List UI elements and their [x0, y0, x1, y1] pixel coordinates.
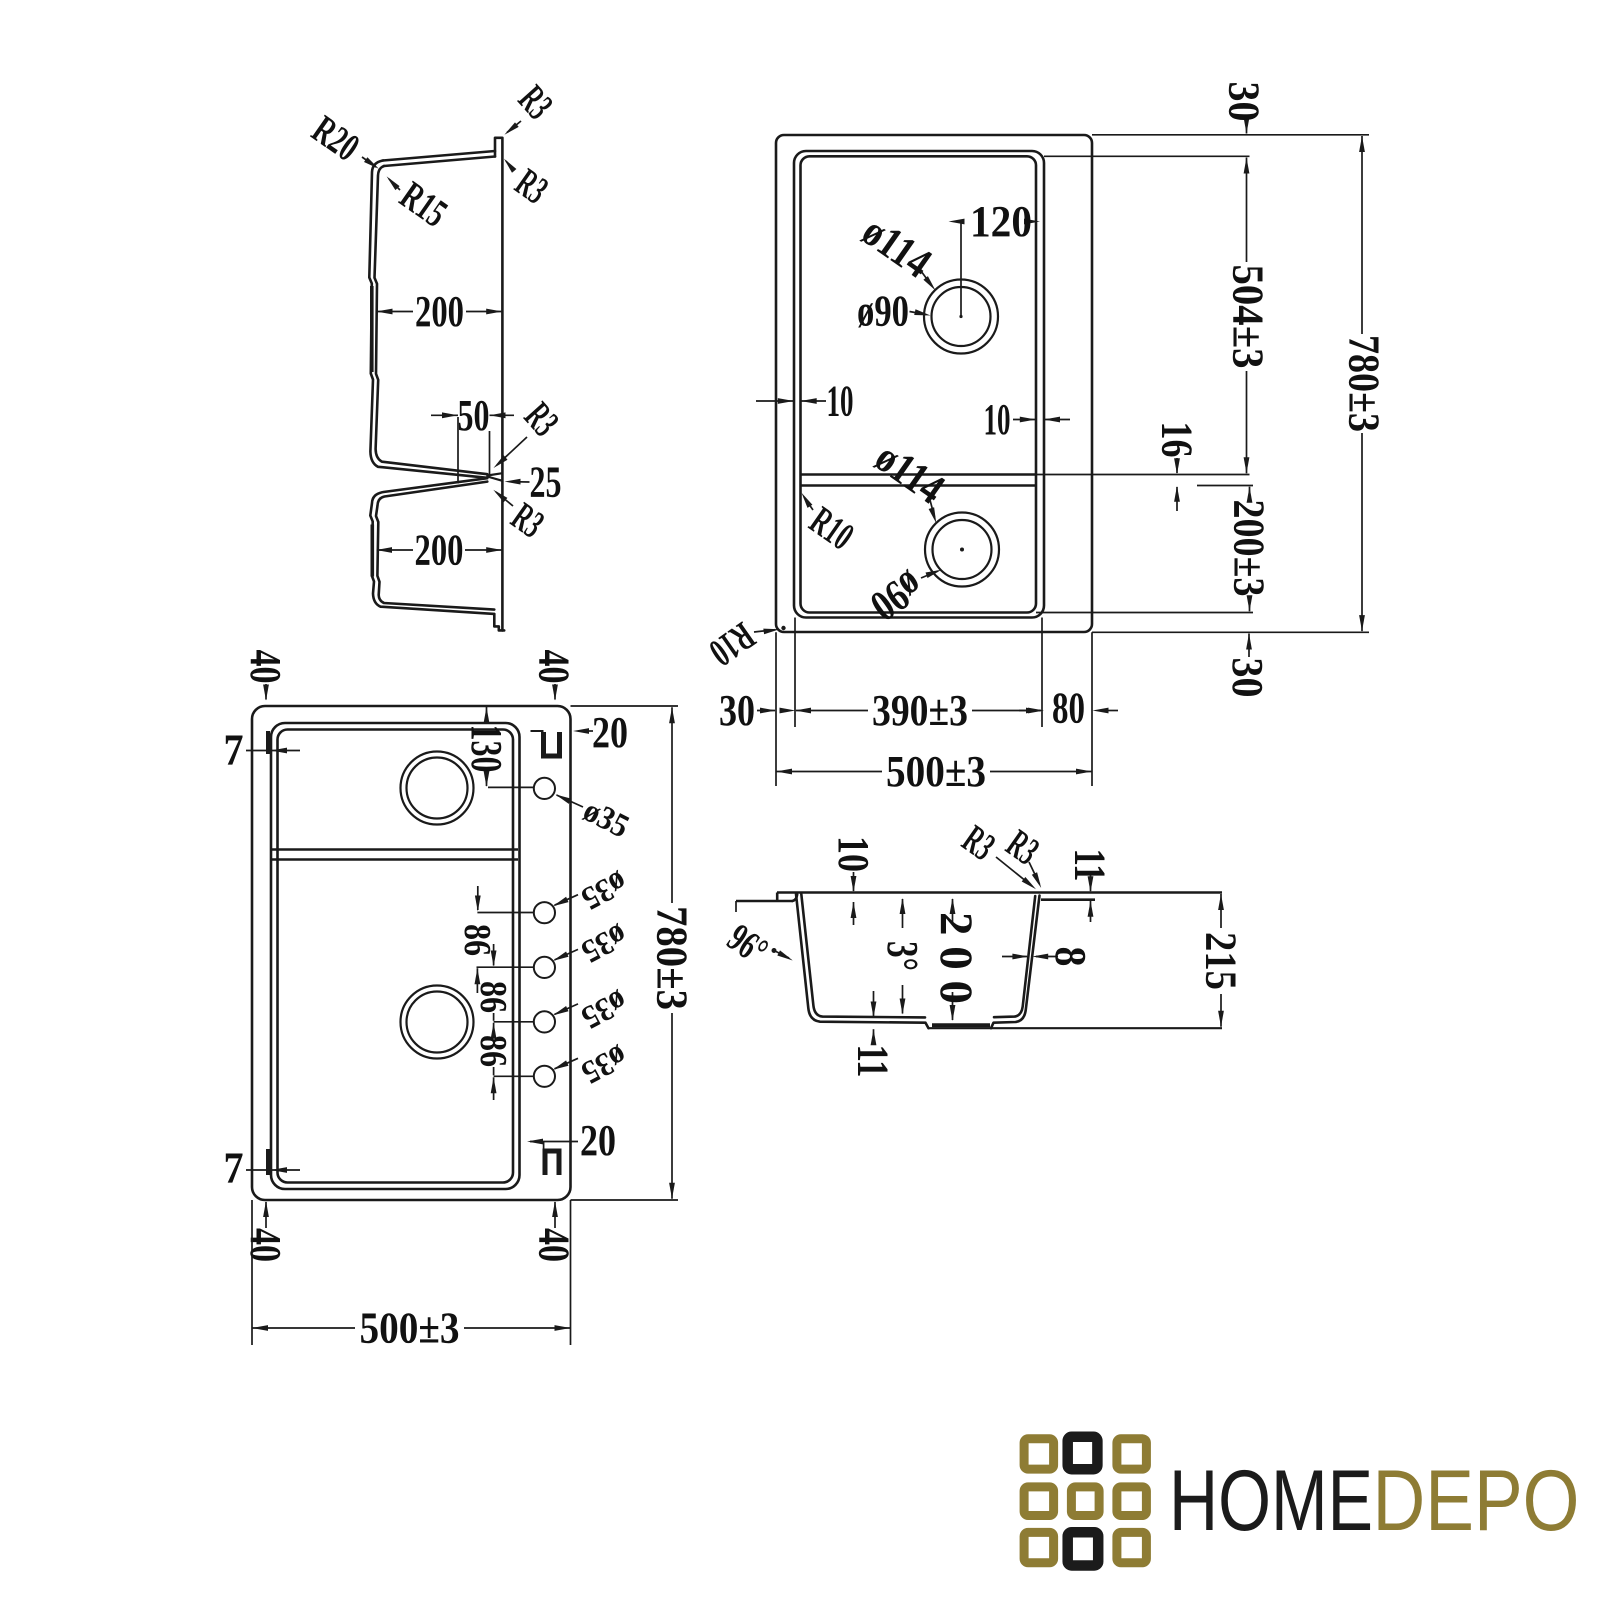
- svg-text:DEPO: DEPO: [1373, 1453, 1580, 1549]
- svg-text:10: 10: [829, 836, 878, 872]
- svg-text:215: 215: [1197, 932, 1246, 990]
- svg-text:10: 10: [984, 395, 1011, 444]
- svg-text:7: 7: [224, 1144, 244, 1193]
- svg-text:780±3: 780±3: [648, 906, 697, 1010]
- svg-text:500±3: 500±3: [360, 1304, 460, 1353]
- svg-text:390±3: 390±3: [872, 686, 968, 735]
- svg-text:ø90: ø90: [857, 287, 909, 336]
- svg-text:11: 11: [849, 1045, 898, 1078]
- svg-text:HOME: HOME: [1169, 1453, 1373, 1549]
- svg-text:3°: 3°: [878, 941, 927, 971]
- svg-text:86: 86: [472, 1035, 514, 1067]
- svg-text:10: 10: [827, 377, 854, 426]
- svg-text:120: 120: [970, 197, 1032, 246]
- svg-text:40: 40: [241, 650, 290, 684]
- svg-text:30: 30: [719, 686, 755, 735]
- svg-text:40: 40: [530, 650, 579, 684]
- svg-text:16: 16: [1153, 422, 1202, 458]
- svg-text:30: 30: [1223, 658, 1272, 698]
- svg-text:86: 86: [472, 981, 514, 1013]
- svg-text:780±3: 780±3: [1340, 335, 1389, 432]
- svg-text:30: 30: [1220, 82, 1269, 122]
- svg-text:130: 130: [462, 725, 511, 773]
- svg-text:504±3: 504±3: [1224, 265, 1273, 369]
- svg-text:20: 20: [580, 1116, 616, 1165]
- svg-text:50: 50: [458, 391, 490, 440]
- svg-text:40: 40: [241, 1228, 290, 1262]
- svg-text:500±3: 500±3: [886, 747, 986, 796]
- svg-text:7: 7: [224, 726, 244, 775]
- svg-text:80: 80: [1052, 684, 1085, 733]
- svg-text:8: 8: [1046, 947, 1095, 967]
- svg-text:200: 200: [415, 287, 464, 336]
- svg-text:200±3: 200±3: [1225, 500, 1274, 597]
- svg-text:20: 20: [592, 708, 628, 757]
- svg-text:200: 200: [415, 526, 464, 575]
- svg-text:200: 200: [930, 912, 982, 1004]
